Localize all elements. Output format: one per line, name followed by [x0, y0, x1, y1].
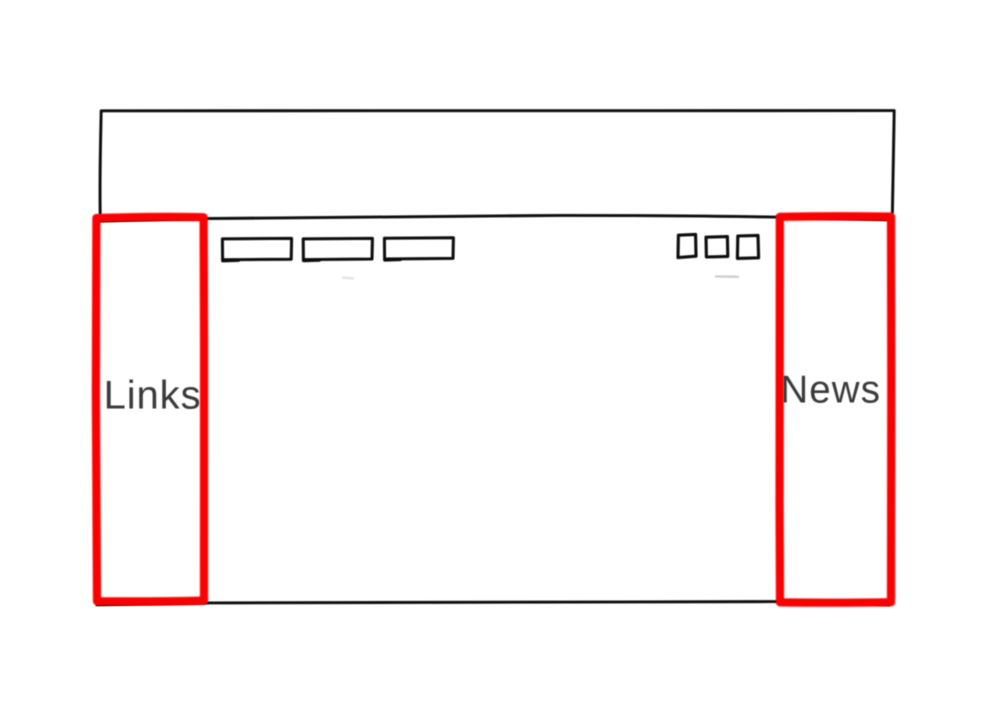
svg-text:News: News [780, 368, 881, 411]
svg-text:Links: Links [104, 374, 202, 418]
